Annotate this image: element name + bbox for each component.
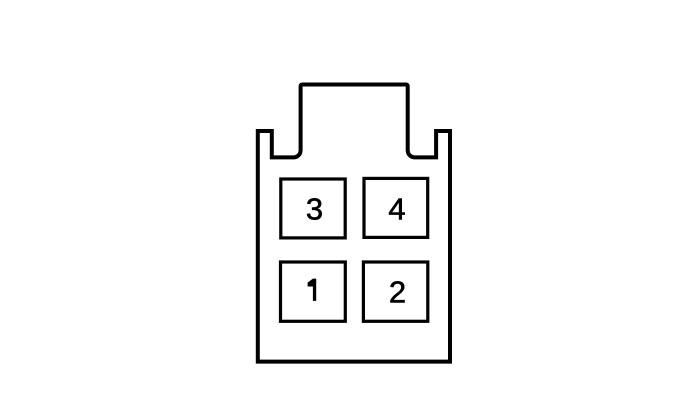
svg-text:3: 3	[306, 192, 323, 227]
svg-text:4: 4	[388, 192, 405, 227]
svg-text:2: 2	[389, 275, 406, 310]
